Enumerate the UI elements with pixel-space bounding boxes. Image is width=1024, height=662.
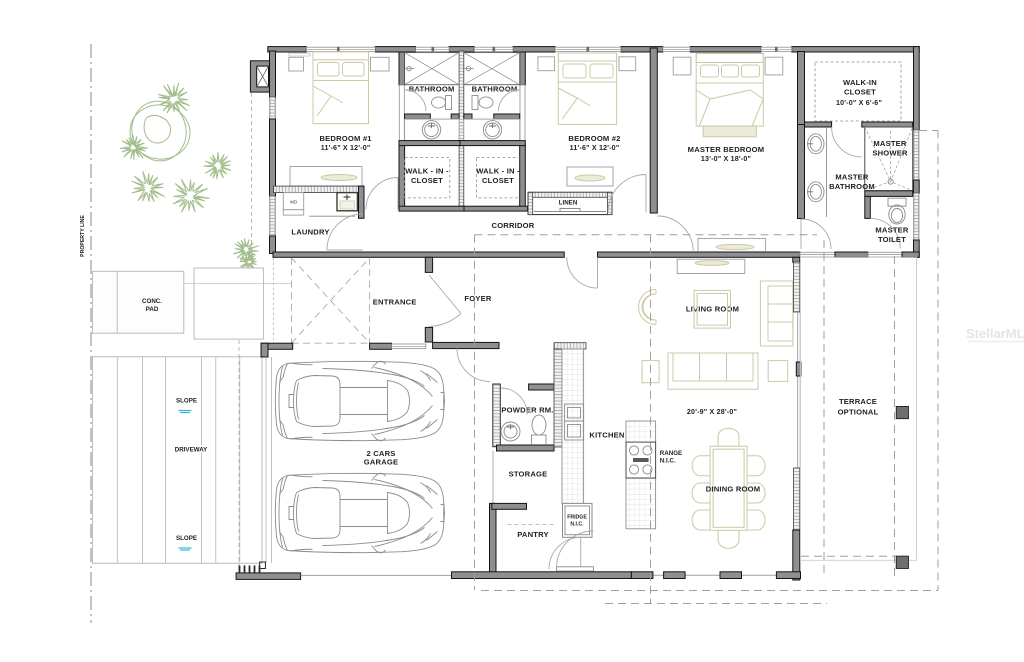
svg-text:MASTER: MASTER — [875, 226, 909, 235]
svg-text:CLOSET: CLOSET — [411, 176, 443, 185]
svg-text:CLOSET: CLOSET — [844, 88, 876, 97]
svg-text:DRIVEWAY: DRIVEWAY — [175, 447, 208, 454]
svg-text:PAD: PAD — [146, 306, 159, 313]
svg-text:SHOWER: SHOWER — [872, 149, 908, 158]
svg-text:ENTRANCE: ENTRANCE — [373, 298, 417, 307]
svg-text:BATHROOM: BATHROOM — [409, 85, 455, 94]
svg-text:SLOPE: SLOPE — [176, 398, 197, 405]
svg-text:10'-0" X 6'-6": 10'-0" X 6'-6" — [836, 99, 882, 107]
svg-text:CONC.: CONC. — [142, 298, 162, 305]
svg-text:CORRIDOR: CORRIDOR — [492, 221, 535, 230]
svg-text:DINING ROOM: DINING ROOM — [706, 485, 761, 494]
svg-text:GARAGE: GARAGE — [364, 458, 399, 467]
svg-text:11'-6" X 12'-0": 11'-6" X 12'-0" — [321, 144, 371, 152]
svg-text:LINEN: LINEN — [559, 199, 578, 206]
svg-text:FRIDGE: FRIDGE — [567, 515, 587, 521]
svg-text:13'-0" X 18'-0": 13'-0" X 18'-0" — [701, 155, 751, 163]
svg-text:SLOPE: SLOPE — [176, 535, 197, 542]
svg-text:11'-6" X 12'-0": 11'-6" X 12'-0" — [570, 144, 620, 152]
svg-text:FOYER: FOYER — [464, 294, 491, 303]
svg-text:TOILET: TOILET — [878, 235, 906, 244]
svg-text:RANGE: RANGE — [660, 450, 682, 457]
svg-text:KITCHEN: KITCHEN — [589, 431, 624, 440]
svg-text:BEDROOM #1: BEDROOM #1 — [319, 134, 372, 143]
svg-text:MASTER BEDROOM: MASTER BEDROOM — [688, 145, 765, 154]
svg-text:PANTRY: PANTRY — [517, 530, 549, 539]
svg-text:CLOSET: CLOSET — [482, 176, 514, 185]
svg-text:N.I.C.: N.I.C. — [660, 458, 676, 465]
svg-text:BEDROOM #2: BEDROOM #2 — [568, 134, 620, 143]
svg-text:MASTER: MASTER — [835, 173, 869, 182]
svg-text:TERRACE: TERRACE — [839, 397, 877, 406]
svg-text:OPTIONAL: OPTIONAL — [838, 408, 879, 417]
svg-text:WALK-IN: WALK-IN — [843, 78, 877, 87]
svg-text:StellarMLS: StellarMLS — [966, 326, 1024, 341]
svg-text:LAUNDRY: LAUNDRY — [291, 227, 329, 236]
svg-text:STORAGE: STORAGE — [509, 470, 548, 479]
svg-text:PROPERTY LINE: PROPERTY LINE — [80, 215, 86, 257]
svg-text:N.I.C.: N.I.C. — [570, 522, 584, 528]
svg-text:WALK - IN -: WALK - IN - — [476, 166, 520, 175]
svg-text:MASTER: MASTER — [873, 139, 907, 148]
svg-text:20'-9" X 28'-0": 20'-9" X 28'-0" — [687, 408, 737, 416]
svg-text:WD: WD — [290, 200, 297, 205]
svg-text:WALK - IN -: WALK - IN - — [405, 166, 449, 175]
svg-text:BATHROOM: BATHROOM — [829, 182, 875, 191]
